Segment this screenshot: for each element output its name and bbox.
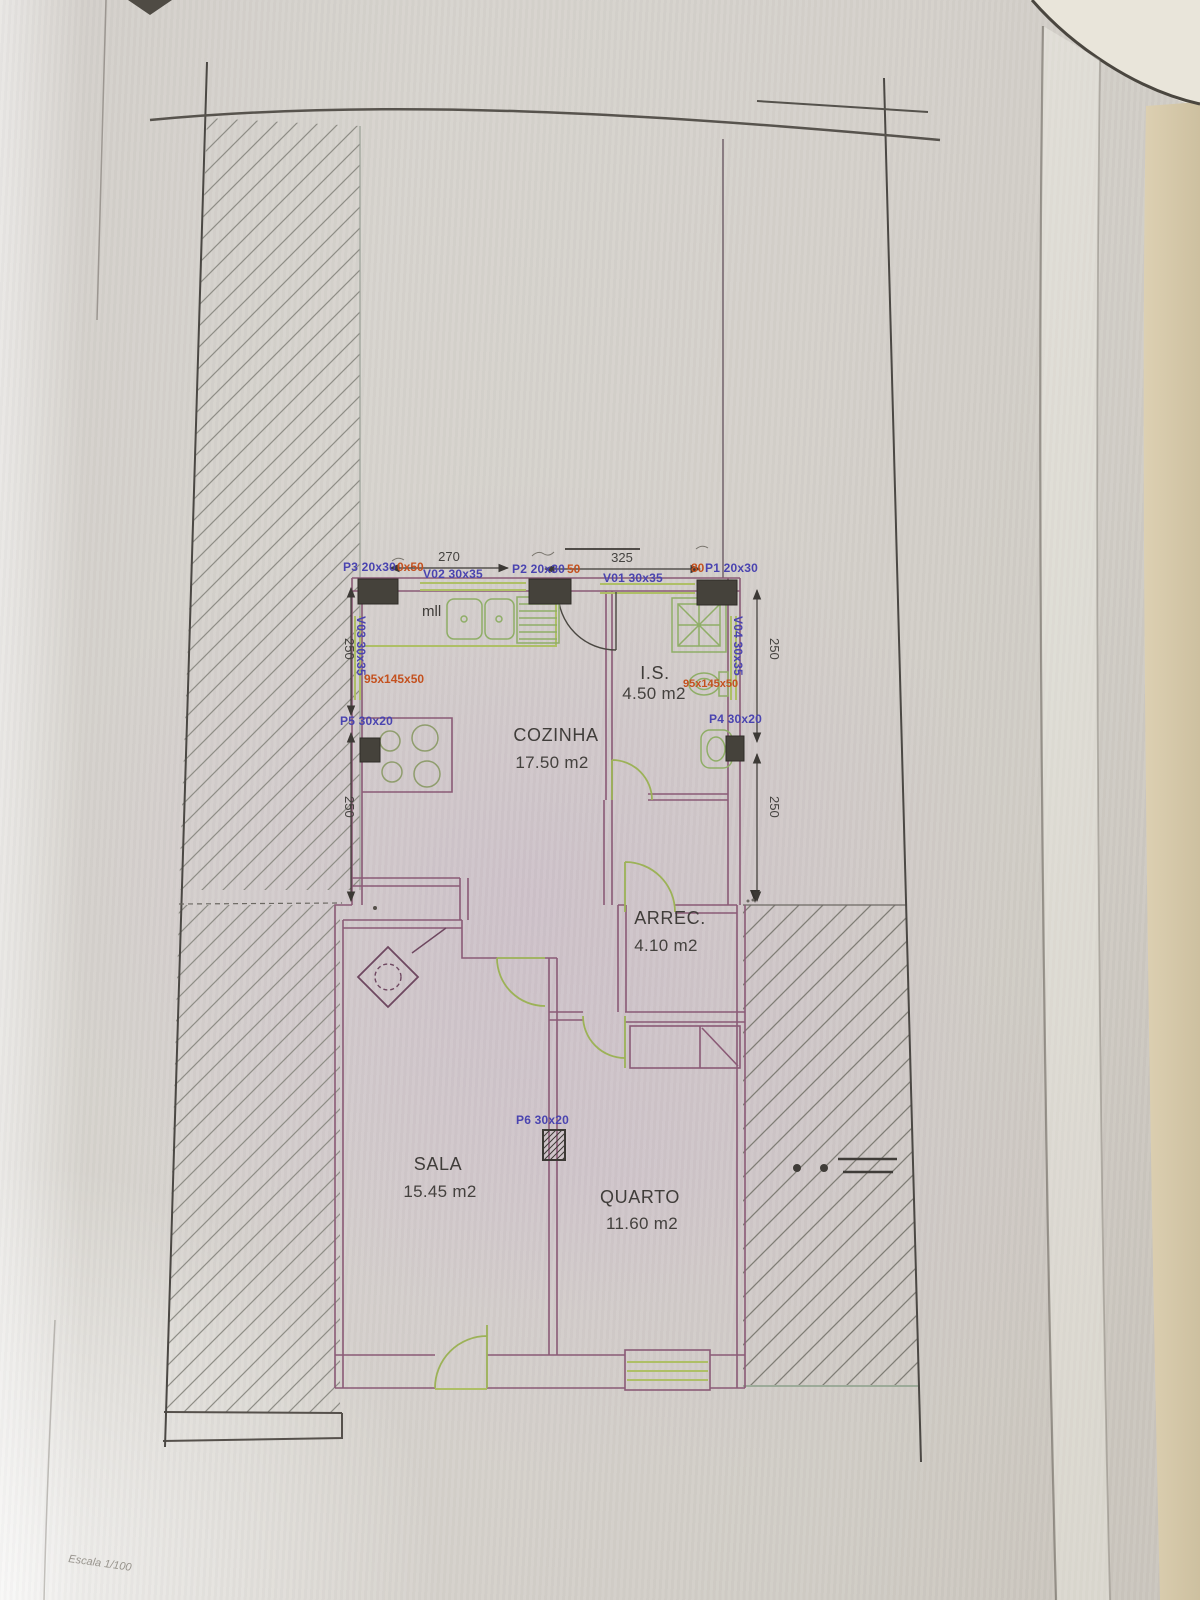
block-p4 <box>726 736 744 761</box>
labels: COZINHA 17.50 m2 I.S. 4.50 m2 ARREC. 4.1… <box>68 549 782 1574</box>
door-quarto <box>583 1016 625 1068</box>
left-sidewalk-band <box>163 1412 343 1441</box>
block-p1 <box>697 580 737 605</box>
block-p3 <box>358 579 398 604</box>
label-room-arrec: ARREC. <box>634 908 706 928</box>
label-room-cozinha: COZINHA <box>513 725 598 745</box>
label-p1: P1 20x30 <box>705 561 758 575</box>
window-v02-lines <box>420 583 526 590</box>
block-p2 <box>529 579 571 604</box>
tick-dot-2 <box>752 899 755 902</box>
label-area-arrec: 4.10 m2 <box>634 936 698 955</box>
left-yard-hatch-upper <box>179 118 360 890</box>
tick-dot-1 <box>747 900 750 903</box>
label-area-is: 4.50 m2 <box>622 684 686 703</box>
floor-plan-drawing: COZINHA 17.50 m2 I.S. 4.50 m2 ARREC. 4.1… <box>0 0 1200 1600</box>
label-room-is: I.S. <box>640 663 669 683</box>
label-p5: P5 30x20 <box>340 714 393 728</box>
door-entry <box>435 1325 487 1388</box>
next-page-edge-strip <box>1144 102 1200 1600</box>
label-p6: P6 30x20 <box>516 1113 569 1127</box>
door-sala <box>497 958 545 1006</box>
left-page-edge-line <box>97 0 106 320</box>
shower <box>672 598 726 652</box>
dim-left-upper: 250 <box>342 638 357 660</box>
label-area-quarto: 11.60 m2 <box>606 1214 678 1233</box>
bottom-left-fold-line <box>44 1320 55 1600</box>
top-left-corner-mark <box>128 0 172 15</box>
boundary-arrow-right <box>750 890 760 903</box>
label-v02: V02 30x35 <box>423 567 483 581</box>
left-yard-hatch-lower <box>166 905 340 1412</box>
label-area-sala: 15.45 m2 <box>403 1182 476 1201</box>
label-p2: P2 20x30 <box>512 562 565 576</box>
survey-dot <box>373 906 377 910</box>
label-room-quarto: QUARTO <box>600 1187 680 1207</box>
label-p2-note: 50 <box>567 562 581 576</box>
boundary-top-segment <box>757 101 928 112</box>
dim-270: 270 <box>438 549 460 564</box>
dim-left-lower: 250 <box>342 796 357 818</box>
label-window-note-left: 95x145x50 <box>364 672 424 686</box>
door-is <box>612 760 652 800</box>
dim-right-lower: 250 <box>767 796 782 818</box>
block-p5 <box>360 738 380 762</box>
stove-burners <box>380 725 440 787</box>
label-p3-note: 0x50 <box>397 560 424 574</box>
label-area-cozinha: 17.50 m2 <box>515 753 588 772</box>
quarto-window-lines <box>627 1362 708 1380</box>
label-p1-note: 80 <box>691 561 705 575</box>
dim-right-upper: 250 <box>767 638 782 660</box>
door-arrec <box>625 862 675 912</box>
label-room-sala: SALA <box>414 1154 462 1174</box>
fireplace <box>358 928 446 1007</box>
dim-325: 325 <box>611 550 633 565</box>
label-mll: mll <box>422 603 441 620</box>
window-sills-and-counter <box>355 583 736 1389</box>
scale-note: Escala 1/100 <box>68 1553 134 1574</box>
right-yard-hatch <box>743 905 918 1385</box>
label-v04: V04 30x35 <box>731 616 745 676</box>
label-window-note-right: 95x145x50 <box>683 678 738 690</box>
sink-basin-2 <box>485 599 514 639</box>
label-v01: V01 30x35 <box>603 571 663 585</box>
doors <box>435 760 675 1388</box>
label-p4: P4 30x20 <box>709 712 762 726</box>
photo-of-floor-plan-page: COZINHA 17.50 m2 I.S. 4.50 m2 ARREC. 4.1… <box>0 0 1200 1600</box>
block-p6 <box>543 1130 565 1160</box>
dashed-terrace-line <box>179 903 342 904</box>
sink-basin-1 <box>447 599 482 639</box>
label-p3: P3 20x30 <box>343 560 396 574</box>
